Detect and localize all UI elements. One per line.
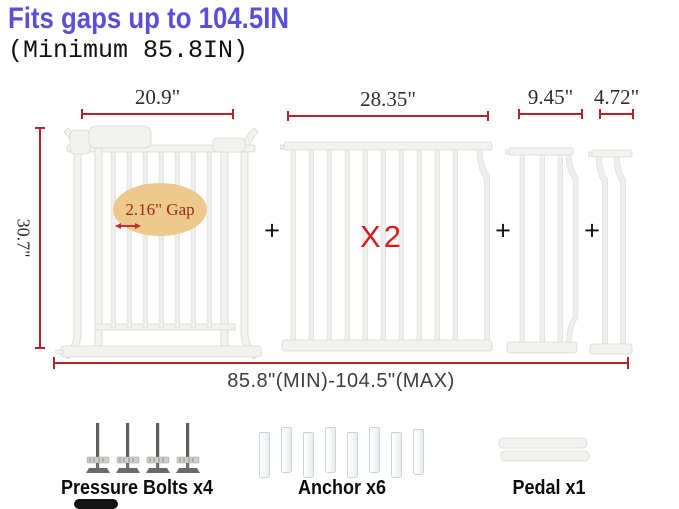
dim-total-range: 85.8"(MIN)-104.5"(MAX): [53, 362, 629, 364]
dim-tick: [518, 109, 520, 119]
footer-marker-bar: [74, 499, 118, 509]
dim-ext-small-width: 4.72": [599, 113, 634, 115]
pressure-bolt: [116, 423, 140, 473]
dim-tick: [632, 109, 634, 119]
pedal-illustration: [498, 437, 590, 465]
anchor: [259, 432, 270, 478]
dim-gate-height: 30.7": [39, 127, 41, 349]
ext-small-top-rail: [588, 150, 632, 157]
dim-ext-medium-width: 9.45": [518, 113, 583, 115]
anchor: [281, 427, 292, 473]
gate-base: [55, 346, 261, 357]
dim-tick: [287, 111, 289, 121]
ext-medium-top-rail: [505, 148, 573, 155]
ext-large-top-rail: [280, 142, 492, 150]
gate-bars: [111, 152, 212, 328]
arrow-line: [121, 225, 135, 227]
extension-medium-illustration: [505, 140, 583, 362]
ext-small-bars: [596, 157, 626, 344]
anchor: [413, 429, 424, 475]
dim-tick: [487, 111, 489, 121]
extension-small-illustration: [588, 140, 640, 362]
dim-tick: [35, 127, 45, 129]
pressure-bolt: [146, 423, 170, 473]
pressure-bolts-label: Pressure Bolts x4: [61, 477, 213, 500]
anchor: [303, 432, 314, 478]
dim-tick: [627, 357, 629, 369]
gap-note-text: 2.16" Gap: [125, 200, 194, 220]
ext-large-qty: X2: [360, 219, 404, 255]
ext-small-base: [590, 344, 632, 354]
gate-hinge: [213, 138, 245, 152]
total-range-label: 85.8"(MIN)-104.5"(MAX): [227, 370, 454, 393]
gap-arrow-icon: [115, 222, 141, 230]
dim-tick: [53, 357, 55, 369]
ext-large-width-label: 28.35": [360, 87, 416, 112]
dim-tick: [599, 109, 601, 119]
product-dimension-diagram: Fits gaps up to 104.5IN (Minimum 85.8IN)…: [0, 0, 679, 509]
arrow-right-head: [135, 223, 141, 229]
page-subtitle: (Minimum 85.8IN): [8, 36, 248, 65]
pedal-bar: [499, 438, 587, 448]
anchor: [391, 432, 402, 478]
dim-tick: [581, 109, 583, 119]
anchor: [347, 432, 358, 478]
dim-tick: [35, 347, 45, 349]
pressure-bolts-illustration: [82, 421, 212, 475]
pressure-bolt: [176, 423, 200, 473]
pressure-bolt: [86, 423, 110, 473]
ext-medium-width-label: 9.45": [528, 85, 573, 110]
gate-height-label: 30.7": [13, 219, 34, 258]
gate-door-frame: [95, 148, 235, 346]
ext-large-base: [282, 340, 492, 351]
anchor: [325, 427, 336, 473]
gate-width-label: 20.9": [135, 85, 180, 110]
pedal-label: Pedal x1: [512, 477, 585, 500]
anchors-label: Anchor x6: [298, 477, 386, 500]
anchor: [369, 427, 380, 473]
ext-medium-base: [507, 342, 577, 353]
dim-gate-width: 20.9": [81, 113, 234, 115]
ext-small-width-label: 4.72": [594, 85, 639, 110]
anchors-illustration: [259, 427, 435, 479]
page-title: Fits gaps up to 104.5IN: [8, 2, 289, 36]
ext-medium-bars: [520, 155, 578, 342]
pedal-bar: [501, 451, 589, 461]
dim-ext-large-width: 28.35": [287, 115, 489, 117]
plus-sign-1: +: [264, 216, 280, 247]
main-gate-illustration: [55, 118, 267, 364]
